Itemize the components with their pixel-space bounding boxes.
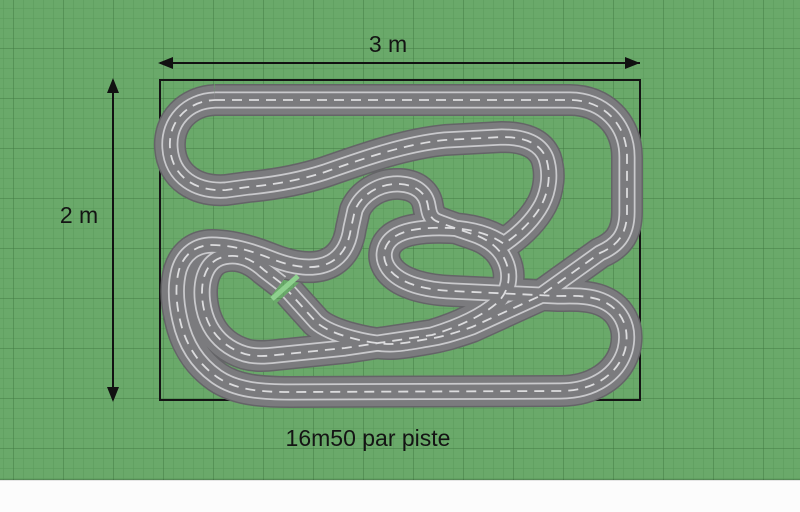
track-plan-svg: 3 m 2 m 16m50 par piste [0,0,800,512]
caption-label: 16m50 par piste [286,425,451,451]
height-dimension-label: 2 m [60,202,98,228]
track-plan-page: 3 m 2 m 16m50 par piste [0,0,800,512]
width-dimension-label: 3 m [369,31,407,57]
plan-bottom-edge [0,479,800,481]
